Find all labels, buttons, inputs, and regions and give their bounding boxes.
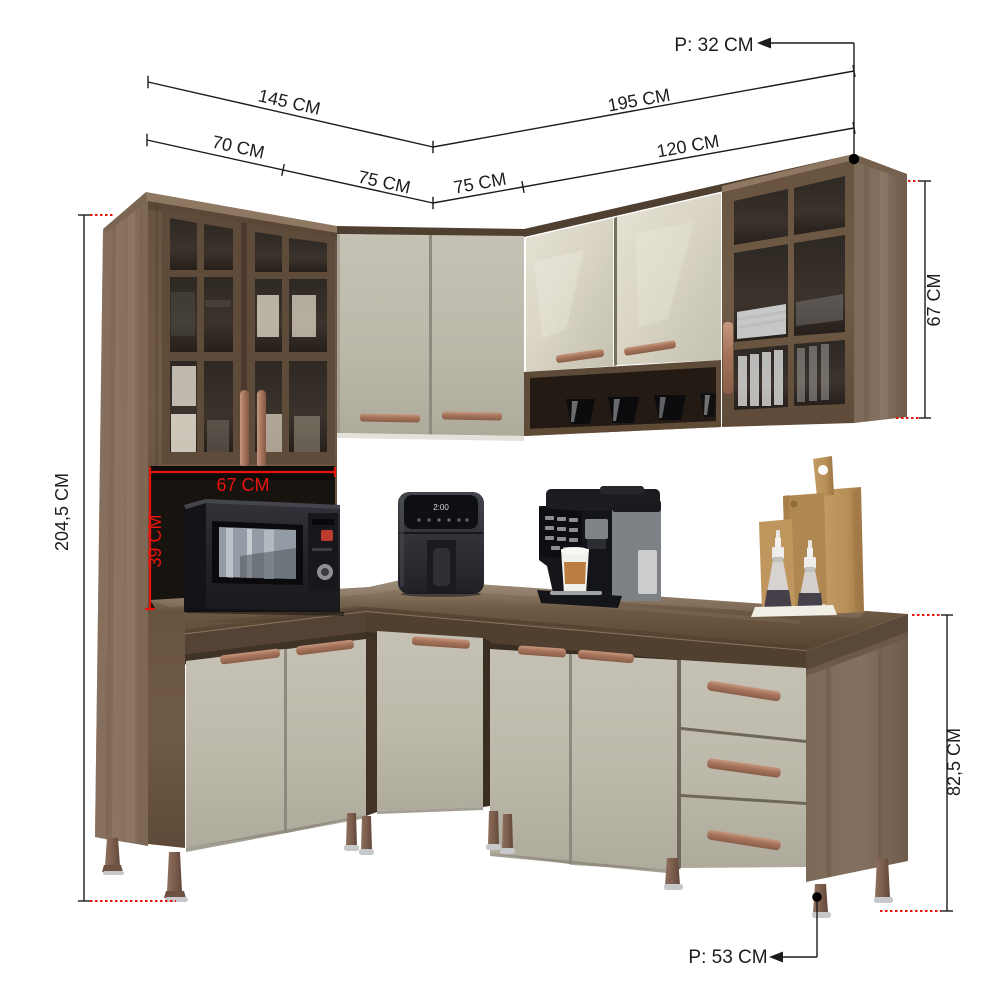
svg-text:67 CM: 67 CM [924, 273, 944, 326]
svg-text:2:00: 2:00 [433, 503, 449, 512]
svg-text:P: 53 CM: P: 53 CM [688, 947, 767, 968]
svg-text:P: 32 CM: P: 32 CM [674, 35, 753, 56]
svg-text:204,5 CM: 204,5 CM [52, 473, 72, 551]
svg-text:67 CM: 67 CM [216, 475, 269, 495]
svg-text:39 CM: 39 CM [145, 514, 165, 567]
svg-text:82,5 CM: 82,5 CM [944, 728, 964, 796]
